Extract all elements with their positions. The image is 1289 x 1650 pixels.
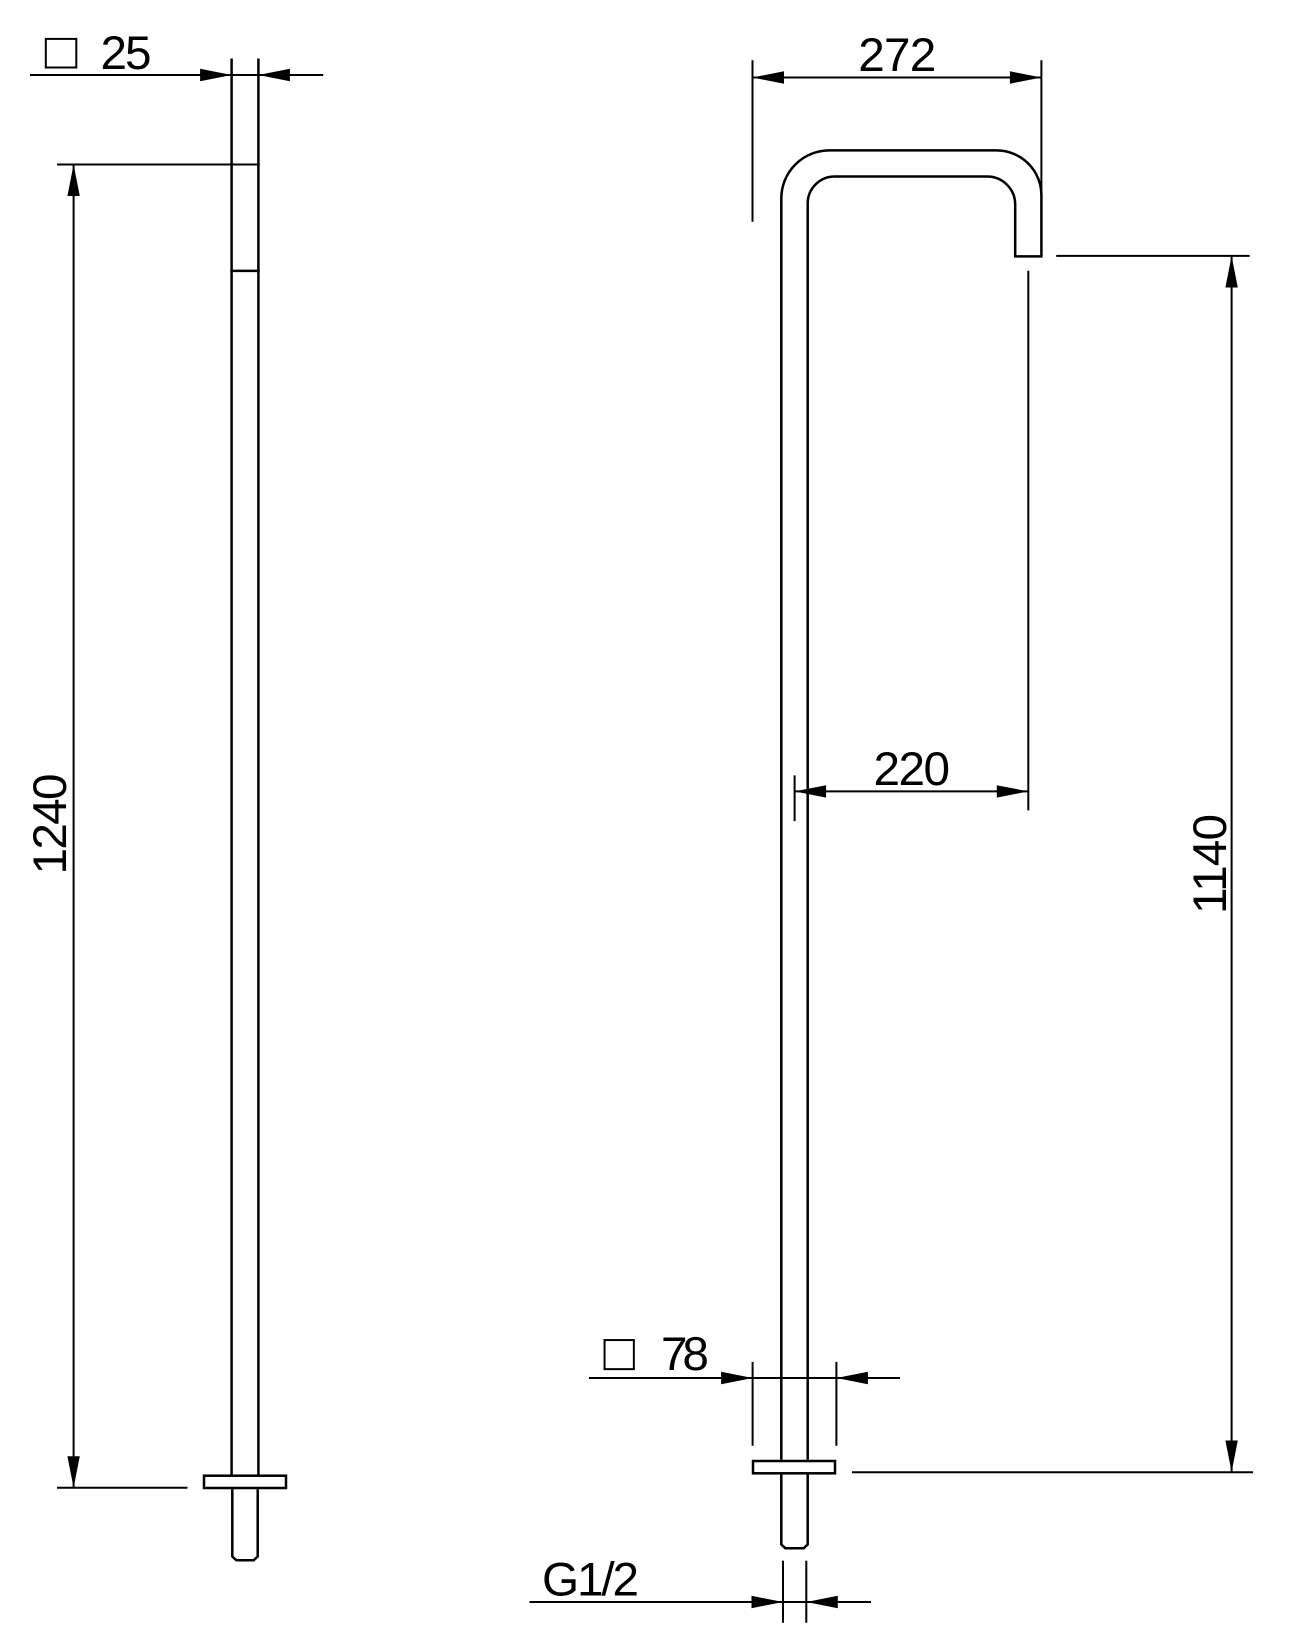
svg-text:G1/2: G1/2 [542, 1553, 639, 1606]
svg-text:220: 220 [874, 743, 951, 796]
svg-text:78: 78 [661, 1328, 709, 1381]
svg-text:25: 25 [101, 27, 152, 80]
svg-text:1240: 1240 [24, 774, 77, 875]
svg-text:272: 272 [858, 29, 936, 82]
svg-text:1140: 1140 [1184, 814, 1237, 914]
